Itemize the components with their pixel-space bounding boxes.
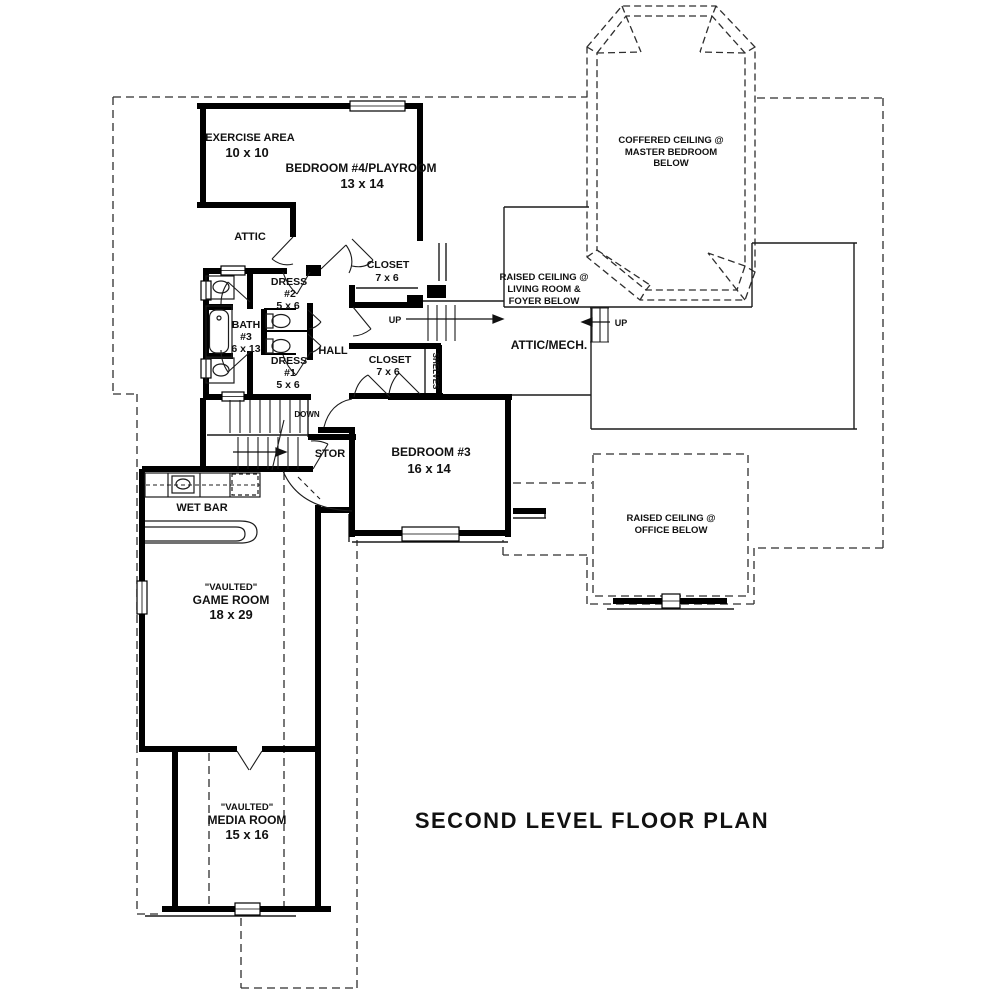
- label-shelves: SHELVES: [431, 353, 440, 390]
- label-game-room-1: "VAULTED": [205, 582, 257, 593]
- label-dress1: DRESS: [271, 355, 307, 367]
- label-closet-lower: CLOSET: [369, 354, 412, 366]
- label-bath3-num: #3: [240, 331, 252, 343]
- label-coffered-2: MASTER BEDROOM: [625, 147, 717, 158]
- label-game-room-2: GAME ROOM: [193, 593, 270, 607]
- label-up-attic: UP: [615, 318, 628, 328]
- label-media-room-1: "VAULTED": [221, 802, 273, 813]
- label-game-room-3: 18 x 29: [209, 607, 252, 622]
- label-dress2-dims: 5 x 6: [276, 300, 300, 312]
- label-closet-upper-dims: 7 x 6: [375, 272, 399, 284]
- label-attic-mech: ATTIC/MECH.: [511, 338, 587, 352]
- label-dress2: DRESS: [271, 276, 307, 288]
- labels-layer: EXERCISE AREA 10 x 10 BEDROOM #4/PLAYROO…: [176, 132, 769, 842]
- label-wet-bar: WET BAR: [176, 502, 227, 514]
- label-dress2-num: #2: [284, 288, 296, 300]
- walls: [142, 103, 727, 910]
- label-raised-living-2: LIVING ROOM &: [507, 284, 581, 295]
- label-raised-living-3: FOYER BELOW: [509, 296, 580, 307]
- label-bedroom4-dims: 13 x 14: [340, 176, 384, 191]
- bar-counter: [145, 521, 257, 543]
- label-raised-office-2: OFFICE BELOW: [635, 525, 708, 536]
- label-dress1-dims: 5 x 6: [276, 379, 300, 391]
- label-bath3: BATH: [232, 319, 260, 331]
- label-up-hall: UP: [389, 315, 402, 325]
- label-down: DOWN: [294, 410, 320, 419]
- label-closet-lower-dims: 7 x 6: [376, 366, 400, 378]
- label-closet-upper: CLOSET: [367, 259, 410, 271]
- label-coffered-1: COFFERED CEILING @: [618, 135, 723, 146]
- label-exercise-dims: 10 x 10: [225, 145, 268, 160]
- plan-title: SECOND LEVEL FLOOR PLAN: [415, 808, 769, 833]
- label-raised-office-1: RAISED CEILING @: [627, 513, 716, 524]
- label-coffered-3: BELOW: [653, 158, 688, 169]
- label-bedroom3-dims: 16 x 14: [407, 461, 451, 476]
- label-raised-living-1: RAISED CEILING @: [500, 272, 589, 283]
- label-attic: ATTIC: [234, 231, 266, 243]
- label-bath3-dims: 6 x 13: [231, 343, 260, 355]
- label-exercise-area: EXERCISE AREA: [205, 132, 295, 144]
- stairs-attic-up: [428, 305, 609, 342]
- label-dress1-num: #1: [284, 367, 296, 379]
- label-hall: HALL: [318, 345, 348, 357]
- floor-plan-canvas: EXERCISE AREA 10 x 10 BEDROOM #4/PLAYROO…: [0, 0, 1000, 1000]
- label-media-room-2: MEDIA ROOM: [208, 813, 287, 827]
- floor-plan-page: EXERCISE AREA 10 x 10 BEDROOM #4/PLAYROO…: [0, 0, 1000, 1000]
- label-bedroom3: BEDROOM #3: [391, 445, 471, 459]
- label-media-room-3: 15 x 16: [225, 827, 268, 842]
- label-bedroom4: BEDROOM #4/PLAYROOM: [286, 161, 437, 175]
- label-stor: STOR: [315, 448, 345, 460]
